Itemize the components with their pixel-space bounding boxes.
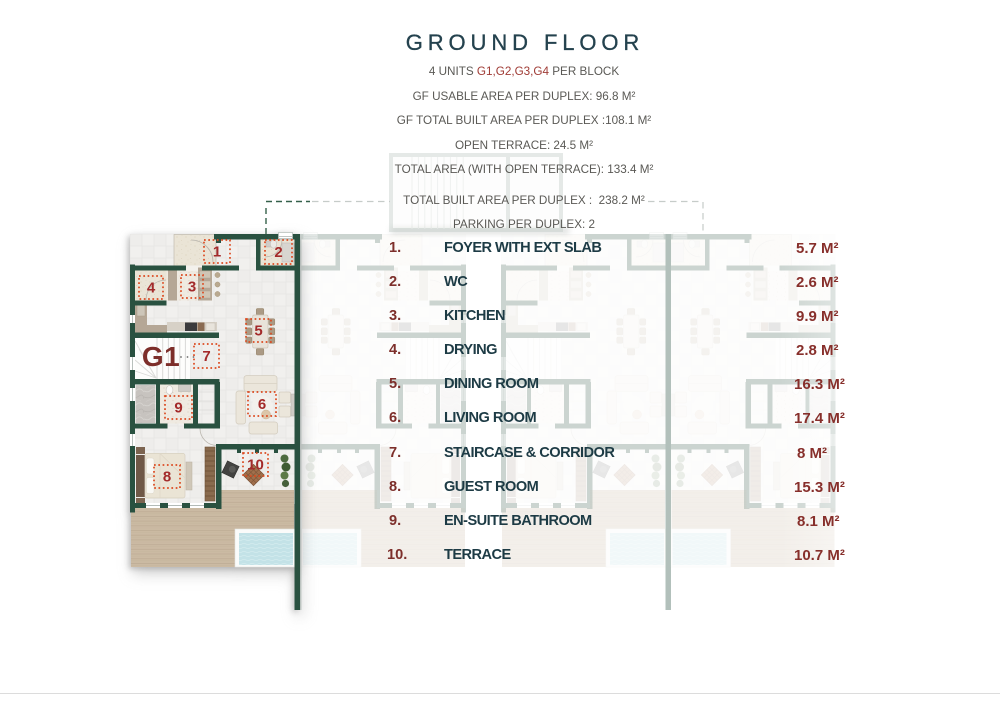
svg-text:5: 5 — [254, 323, 262, 340]
svg-text:7: 7 — [202, 348, 210, 365]
svg-text:9: 9 — [174, 400, 182, 417]
svg-text:2: 2 — [274, 244, 282, 261]
svg-text:8: 8 — [163, 469, 171, 486]
svg-text:3: 3 — [188, 279, 196, 296]
svg-text:10: 10 — [247, 457, 264, 474]
svg-text:1: 1 — [213, 244, 221, 261]
svg-text:G1: G1 — [142, 341, 180, 372]
svg-text:6: 6 — [258, 396, 266, 413]
svg-text:4: 4 — [147, 280, 156, 297]
